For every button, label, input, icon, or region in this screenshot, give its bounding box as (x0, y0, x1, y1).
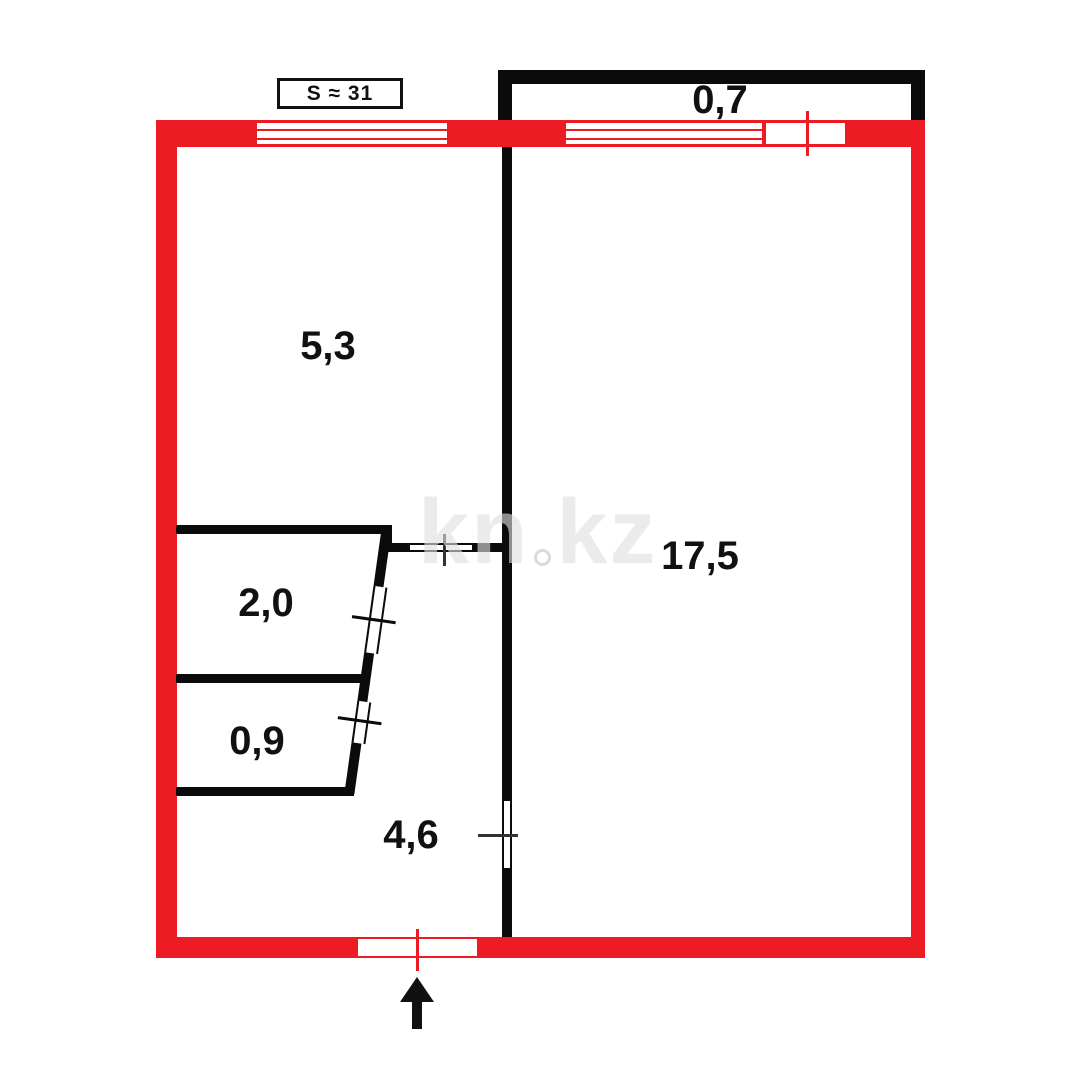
room-area-label-hallway: 4,6 (341, 813, 481, 857)
storage-top-wall (176, 525, 392, 534)
room-area-label-storage-a: 2,0 (196, 581, 336, 625)
entrance-arrow-shaft (412, 1001, 422, 1029)
storage-slanted-wall (344, 532, 391, 794)
hall-to-room-door-mark (478, 834, 518, 837)
total-area-label: S ≈ 31 (307, 82, 374, 106)
window-1 (257, 120, 447, 147)
storage-bottom-wall (176, 787, 354, 796)
room-area-label-room-a: 5,3 (258, 324, 398, 368)
outer-wall-bottom (156, 937, 925, 958)
watermark-left: kn (418, 486, 529, 578)
window-glass-line (566, 129, 762, 131)
window-glass-line (566, 138, 762, 140)
watermark-right: kz (556, 486, 657, 578)
entrance-arrow-icon (400, 977, 434, 1002)
window-2 (566, 120, 766, 147)
watermark: kn kz (418, 486, 658, 578)
room-area-label-storage-b: 0,9 (187, 719, 327, 763)
balcony-wall-left (498, 70, 512, 120)
window-glass-line (257, 129, 447, 131)
balcony-door-mark (806, 111, 809, 156)
floor-plan: S ≈ 31 0,7 5,3 17,5 2,0 0,9 4, (0, 0, 1080, 1080)
watermark-dot-icon (534, 549, 551, 566)
entrance-door-mark (416, 929, 419, 971)
window-glass-line (257, 138, 447, 140)
room-area-label-balcony: 0,7 (650, 78, 790, 122)
balcony-wall-right (911, 70, 925, 120)
outer-wall-right (911, 120, 925, 958)
total-area-badge: S ≈ 31 (277, 78, 403, 109)
outer-wall-left (156, 120, 177, 958)
storage-divider-wall (176, 674, 368, 683)
